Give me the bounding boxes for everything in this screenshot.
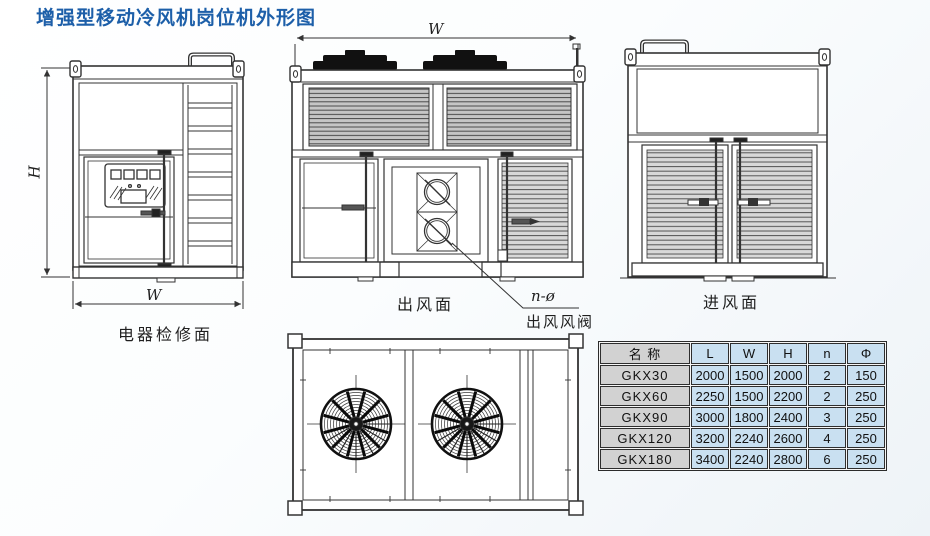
spec-cell: 3200 <box>691 428 729 448</box>
spec-table-header: L <box>691 343 729 364</box>
page-title: 增强型移动冷风机岗位机外形图 <box>36 3 316 30</box>
spec-cell: 250 <box>847 386 885 406</box>
label-inlet-face: 进风面 <box>703 289 760 313</box>
spec-cell: 4 <box>808 428 846 448</box>
spec-cell: 3000 <box>691 407 729 427</box>
spec-cell: 2600 <box>769 428 807 448</box>
spec-cell: 3 <box>808 407 846 427</box>
spec-cell: 1500 <box>730 365 768 385</box>
spec-cell: 6 <box>808 449 846 469</box>
spec-table-header: 名 称 <box>600 343 690 364</box>
spec-cell: 150 <box>847 365 885 385</box>
label-electrical-face: 电器检修面 <box>118 321 213 345</box>
dim-label-width-middle: W <box>428 20 443 38</box>
spec-cell: 2240 <box>730 449 768 469</box>
spec-cell: 250 <box>847 449 885 469</box>
model-cell: GKX90 <box>600 407 690 427</box>
spec-cell: 2 <box>808 365 846 385</box>
spec-cell: 250 <box>847 428 885 448</box>
spec-table-head-row: 名 称LWHnΦ <box>600 343 885 364</box>
view-inlet-face <box>620 42 836 282</box>
spec-table-header: H <box>769 343 807 364</box>
callout-n-diameter: n-ø <box>531 287 555 305</box>
callout-outlet-damper: 出风风阀 <box>526 311 594 332</box>
view-electrical-face <box>41 55 244 310</box>
spec-table-header: W <box>730 343 768 364</box>
view-top-plan <box>288 334 583 515</box>
spec-cell: 1500 <box>730 386 768 406</box>
spec-cell: 2250 <box>691 386 729 406</box>
control-panel <box>105 164 165 207</box>
spec-cell: 3400 <box>691 449 729 469</box>
table-row: GKX602250150022002250 <box>600 386 885 406</box>
model-cell: GKX60 <box>600 386 690 406</box>
table-row: GKX903000180024003250 <box>600 407 885 427</box>
spec-cell: 2240 <box>730 428 768 448</box>
drawing-canvas: 增强型移动冷风机岗位机外形图 H W W 电器检修面 出风面 进风面 n-ø 出… <box>0 0 930 536</box>
spec-table-body: GKX302000150020002150GKX6022501500220022… <box>600 365 885 469</box>
dim-label-height: H <box>26 165 44 178</box>
spec-cell: 2800 <box>769 449 807 469</box>
roof-fan-motors <box>313 50 507 70</box>
table-row: GKX302000150020002150 <box>600 365 885 385</box>
spec-cell: 2 <box>808 386 846 406</box>
spec-cell: 2000 <box>769 365 807 385</box>
spec-cell: 1800 <box>730 407 768 427</box>
table-row: GKX1803400224028006250 <box>600 449 885 469</box>
spec-cell: 250 <box>847 407 885 427</box>
view-outlet-face <box>290 38 585 308</box>
spec-cell: 2000 <box>691 365 729 385</box>
spec-cell: 2400 <box>769 407 807 427</box>
table-row: GKX1203200224026004250 <box>600 428 885 448</box>
label-outlet-face: 出风面 <box>397 291 454 315</box>
spec-cell: 2200 <box>769 386 807 406</box>
model-cell: GKX120 <box>600 428 690 448</box>
spec-table-header: n <box>808 343 846 364</box>
spec-table: 名 称LWHnΦ GKX302000150020002150GKX6022501… <box>598 341 887 471</box>
model-cell: GKX30 <box>600 365 690 385</box>
spec-table-header: Φ <box>847 343 885 364</box>
model-cell: GKX180 <box>600 449 690 469</box>
dim-label-width-left: W <box>146 286 161 304</box>
